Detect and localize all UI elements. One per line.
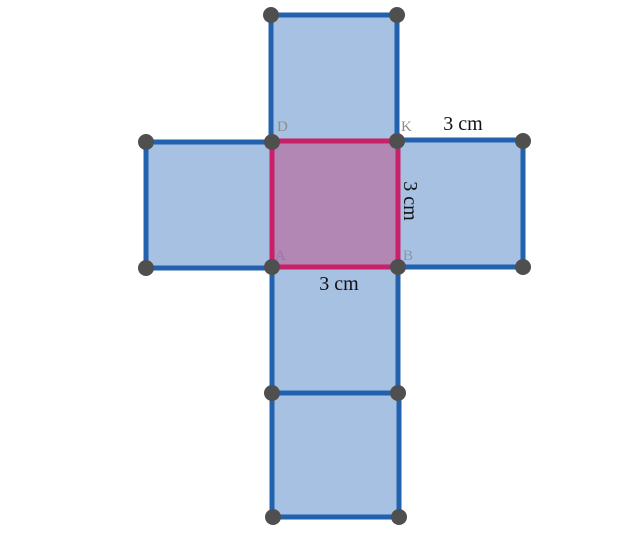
vertex-dot-5 xyxy=(515,133,531,149)
vertex-label-D: D xyxy=(277,119,288,135)
face-center-highlighted xyxy=(272,141,398,267)
measurement-label-0: 3 cm xyxy=(443,113,483,135)
vertex-dot-4 xyxy=(389,133,405,149)
vertex-dot-6 xyxy=(138,260,154,276)
vertex-dot-12 xyxy=(265,509,281,525)
measurement-label-2: 3 cm xyxy=(319,273,359,295)
vertex-dot-1 xyxy=(389,7,405,23)
vertex-dot-2 xyxy=(138,134,154,150)
vertex-label-B: B xyxy=(403,248,413,264)
face-top xyxy=(271,15,397,141)
vertex-label-K: K xyxy=(401,119,412,135)
vertex-dot-3 xyxy=(264,134,280,150)
vertex-dot-10 xyxy=(264,385,280,401)
face-bottom xyxy=(272,393,399,517)
measurement-label-1: 3 cm xyxy=(399,181,421,221)
vertex-dot-11 xyxy=(390,385,406,401)
vertex-dot-9 xyxy=(515,259,531,275)
vertex-dot-8 xyxy=(390,259,406,275)
cube-net-diagram: 3 cm3 cm3 cmDKAB xyxy=(0,0,640,536)
vertex-dot-7 xyxy=(264,259,280,275)
vertex-dot-13 xyxy=(391,509,407,525)
vertex-dot-0 xyxy=(263,7,279,23)
face-left xyxy=(146,142,272,268)
figure-canvas: 3 cm3 cm3 cmDKAB xyxy=(0,0,640,536)
